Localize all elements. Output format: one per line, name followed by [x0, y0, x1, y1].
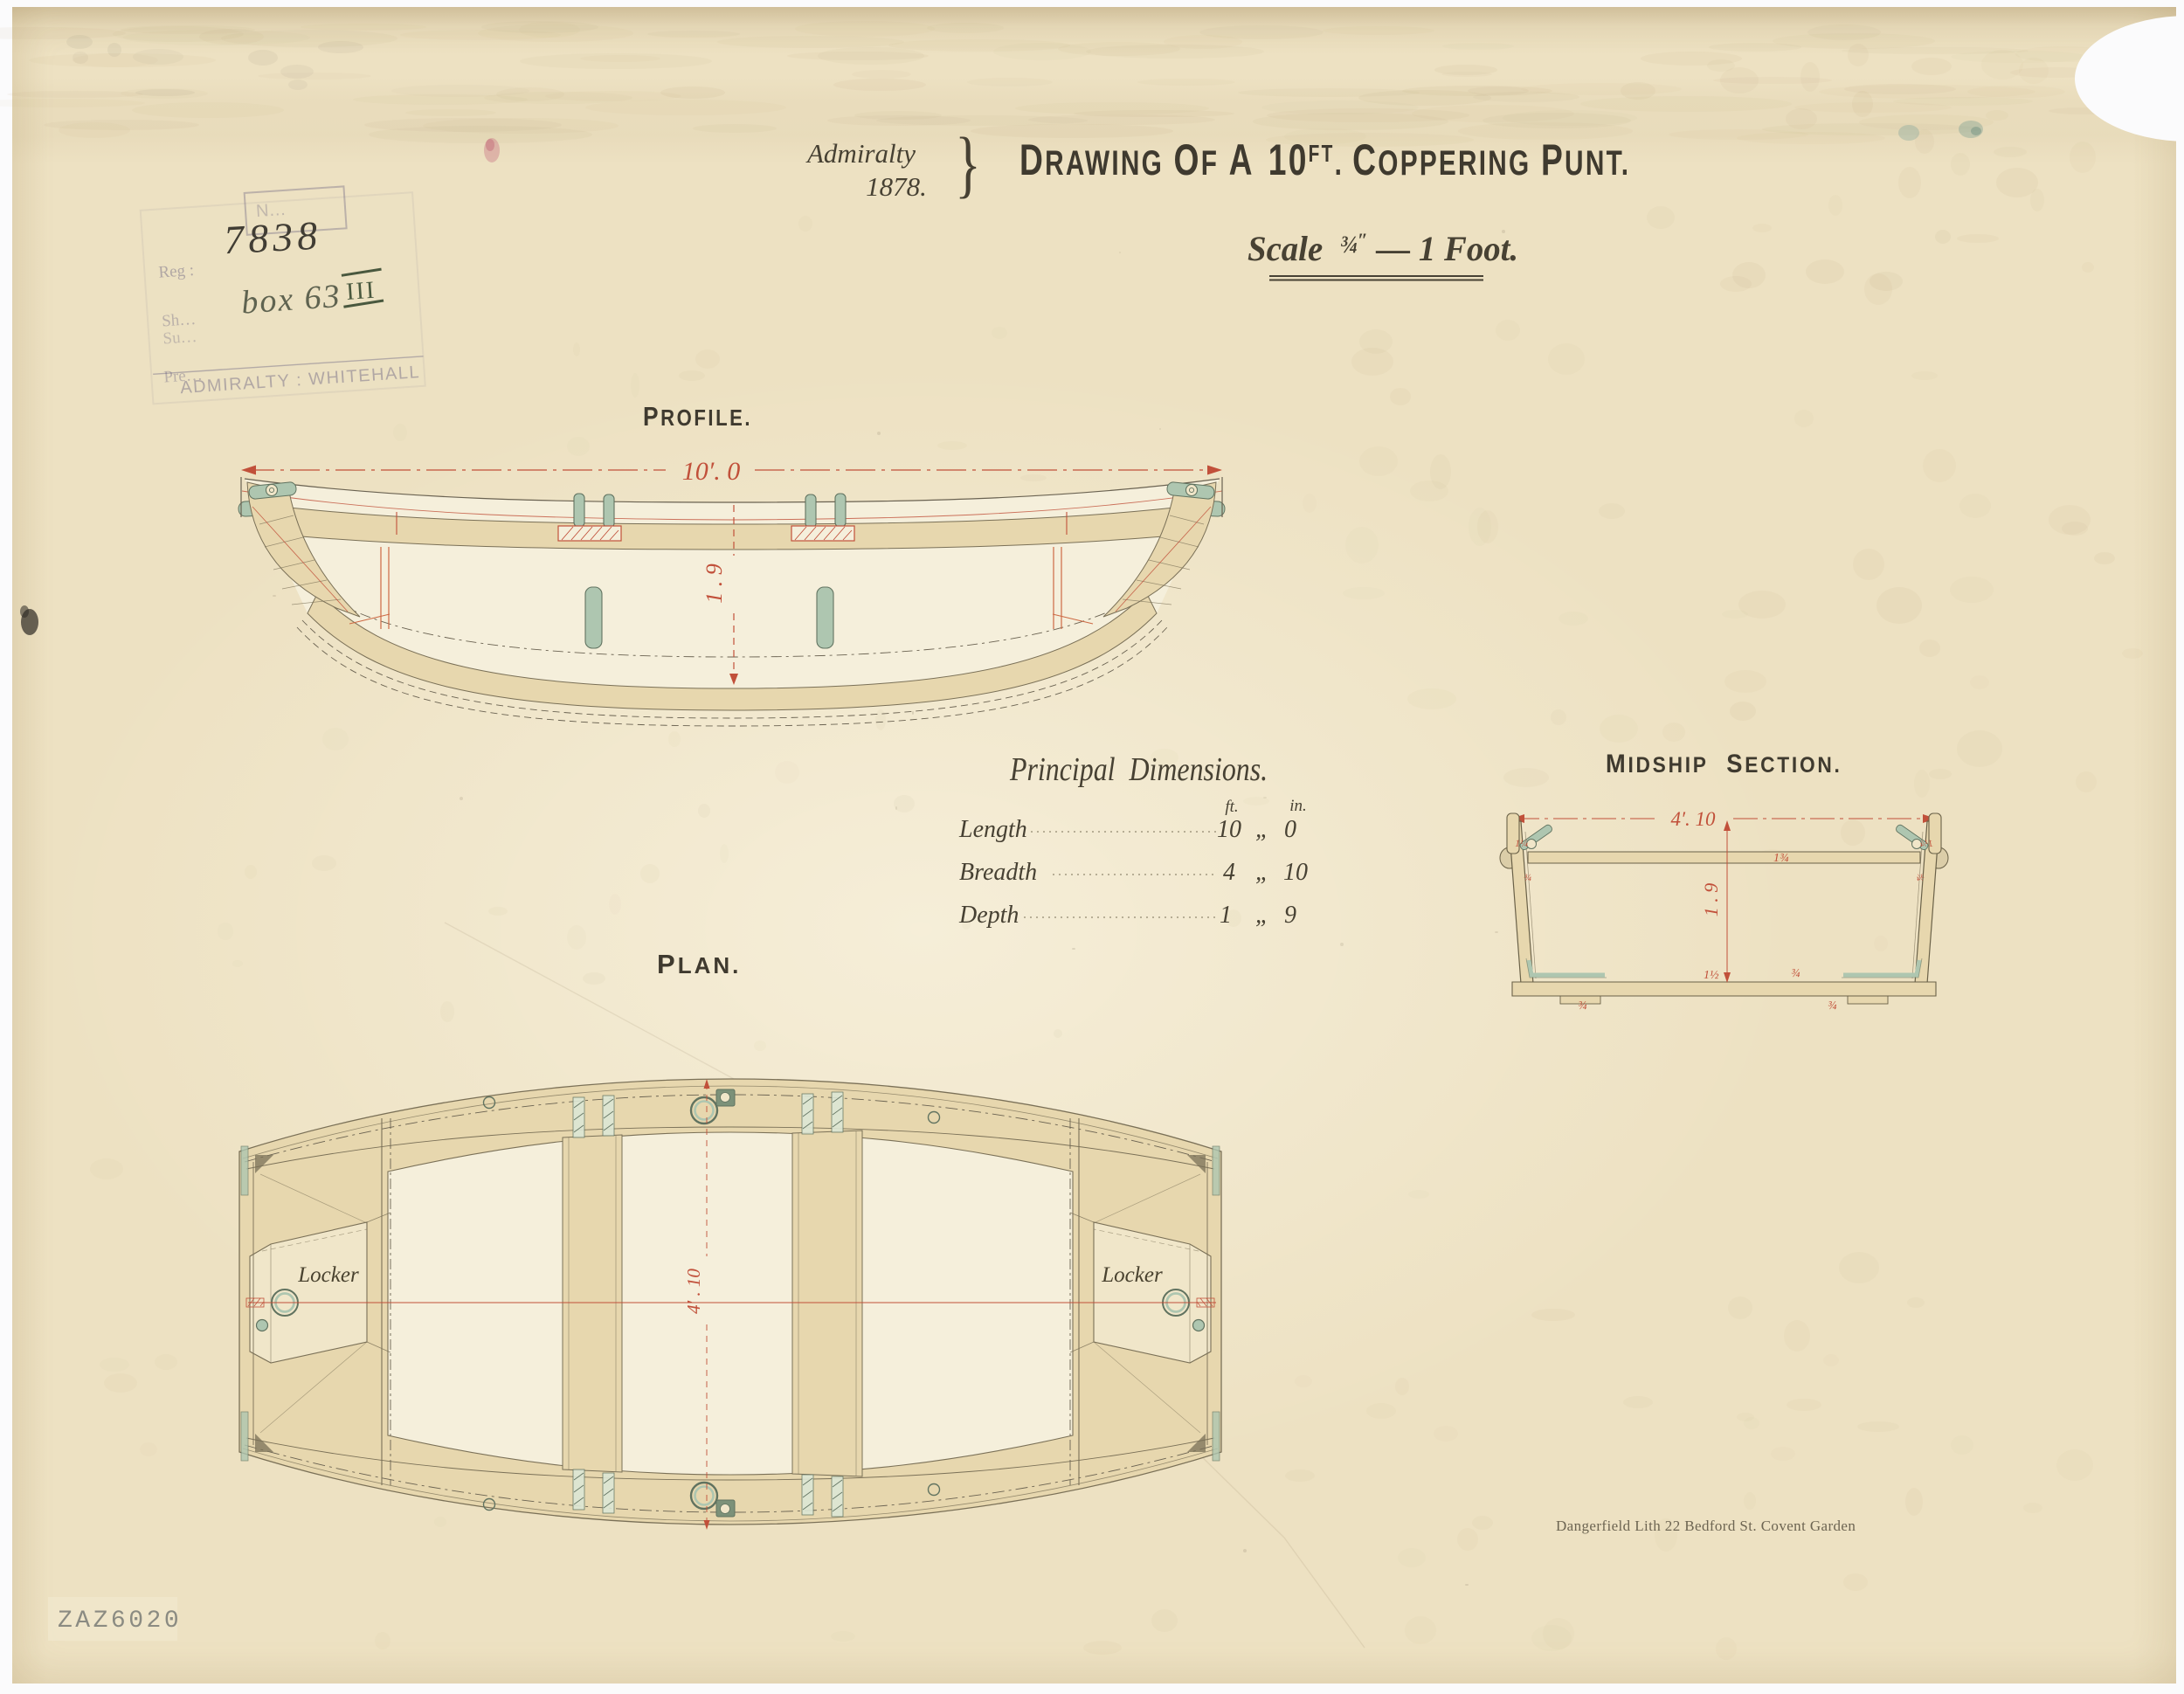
svg-text:PROFILE.: PROFILE. — [643, 402, 752, 432]
svg-text:in.: in. — [1289, 797, 1307, 815]
svg-text:1: 1 — [1220, 902, 1232, 929]
svg-text:Locker: Locker — [297, 1263, 359, 1287]
svg-text:Dangerfield Lith 22 Bedford St: Dangerfield Lith 22 Bedford St. Covent G… — [1556, 1518, 1856, 1534]
svg-text:Scale ¾″ — 1 Foot.: Scale ¾″ — 1 Foot. — [1248, 229, 1518, 268]
svg-text:ZAZ6020: ZAZ6020 — [58, 1608, 182, 1635]
svg-text:ft.: ft. — [1225, 798, 1238, 816]
svg-text:1¾: 1¾ — [1773, 852, 1789, 865]
svg-text:10′. 0: 10′. 0 — [682, 457, 741, 486]
svg-text:„: „ — [1255, 859, 1269, 886]
svg-text:DRAWING OF A 10FT.: DRAWING OF A 10FT. COPPERING PUNT. — [1019, 136, 1630, 185]
svg-text:1½: 1½ — [1704, 969, 1719, 982]
svg-text:1878.: 1878. — [866, 171, 927, 202]
svg-text:Reg :: Reg : — [158, 261, 195, 282]
svg-text:MIDSHIP SECTION.: MIDSHIP SECTION. — [1606, 750, 1842, 778]
svg-text:1¼: 1¼ — [1515, 837, 1528, 849]
svg-text:4′. 10: 4′. 10 — [1670, 808, 1716, 830]
svg-text:10: 10 — [1283, 859, 1308, 886]
svg-text:4: 4 — [1223, 859, 1235, 886]
svg-text:Depth: Depth — [958, 902, 1019, 929]
svg-text:¾: ¾ — [1828, 999, 1837, 1013]
svg-text:Su…: Su… — [162, 328, 197, 349]
svg-text:Breadth: Breadth — [959, 859, 1037, 886]
svg-text:9: 9 — [1284, 902, 1296, 929]
svg-text:PLAN.: PLAN. — [657, 949, 741, 979]
svg-text:„: „ — [1255, 902, 1269, 929]
svg-text:1 . 9: 1 . 9 — [702, 564, 727, 604]
svg-text:Admiralty: Admiralty — [805, 138, 916, 169]
svg-text:¾: ¾ — [1578, 999, 1587, 1013]
svg-text:Locker: Locker — [1101, 1263, 1163, 1287]
svg-text:0: 0 — [1284, 816, 1296, 843]
svg-text:box 63: box 63 — [240, 278, 342, 322]
svg-text:¾: ¾ — [1791, 967, 1800, 980]
svg-text:10: 10 — [1217, 816, 1241, 843]
svg-text:1 . 9: 1 . 9 — [1700, 883, 1722, 917]
svg-text:¾: ¾ — [1524, 871, 1531, 883]
svg-text:}: } — [955, 122, 981, 205]
svg-text:„: „ — [1255, 816, 1269, 843]
svg-text:4′ . 10: 4′ . 10 — [683, 1269, 704, 1314]
svg-text:7838: 7838 — [223, 212, 323, 262]
svg-text:Length: Length — [958, 816, 1027, 843]
svg-text:Principal Dimensions.: Principal Dimensions. — [1009, 750, 1268, 787]
